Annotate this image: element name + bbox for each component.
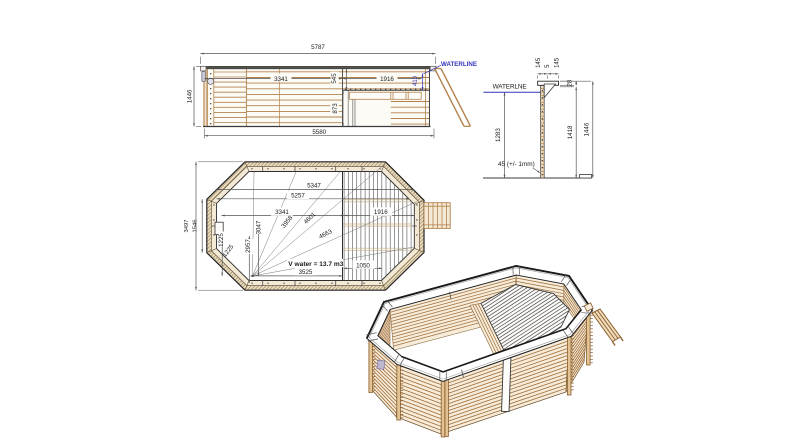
svg-text:WATERLNE: WATERLNE (493, 84, 527, 91)
svg-text:3525: 3525 (299, 269, 313, 276)
svg-text:5347: 5347 (307, 182, 321, 189)
svg-text:3047: 3047 (256, 220, 263, 234)
svg-text:873: 873 (332, 103, 339, 114)
svg-text:WATERLINE: WATERLINE (441, 61, 477, 68)
svg-text:410: 410 (413, 75, 419, 86)
svg-text:1225: 1225 (218, 233, 225, 247)
svg-text:5257: 5257 (291, 193, 305, 200)
svg-text:1050: 1050 (356, 262, 370, 269)
svg-text:545: 545 (331, 73, 338, 84)
svg-text:145: 145 (536, 57, 542, 68)
svg-text:1446: 1446 (187, 89, 194, 103)
svg-text:1446: 1446 (583, 122, 590, 136)
svg-text:1916: 1916 (380, 76, 394, 83)
svg-text:45 (+/- 1mm): 45 (+/- 1mm) (498, 161, 535, 168)
svg-text:1418: 1418 (567, 125, 574, 139)
svg-text:1546: 1546 (193, 220, 199, 233)
svg-text:1916: 1916 (374, 209, 388, 216)
svg-text:5580: 5580 (312, 129, 326, 136)
svg-text:145: 145 (554, 57, 560, 68)
svg-text:5787: 5787 (311, 44, 325, 51)
svg-text:1283: 1283 (495, 128, 502, 142)
svg-text:3497: 3497 (184, 220, 190, 233)
svg-text:2957: 2957 (245, 239, 252, 253)
svg-text:3341: 3341 (274, 76, 288, 83)
svg-text:V water = 13.7 m3: V water = 13.7 m3 (288, 261, 343, 268)
